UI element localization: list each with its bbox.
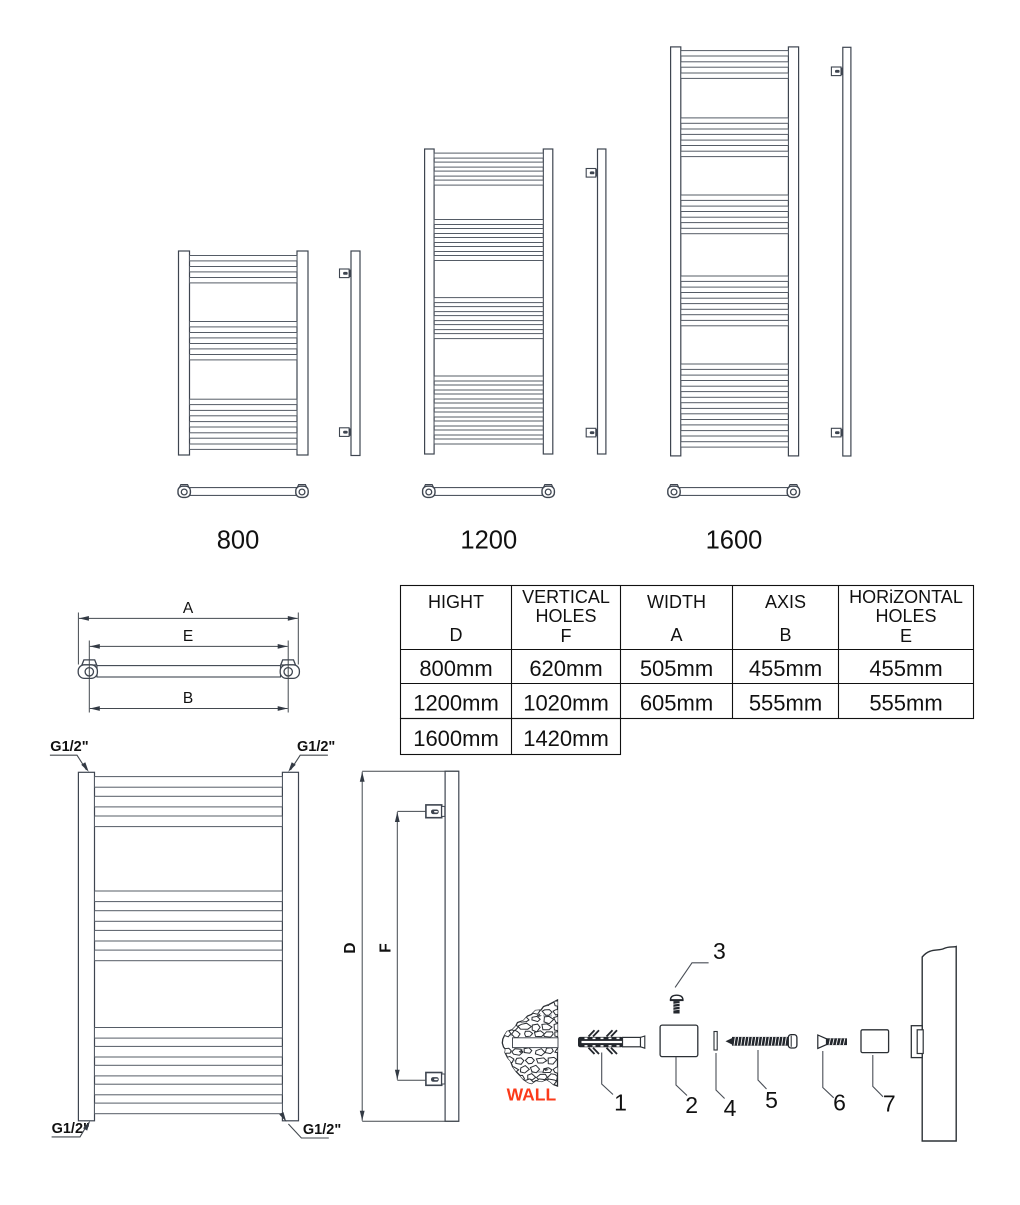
svg-text:605mm: 605mm	[640, 691, 713, 716]
svg-text:A: A	[183, 600, 194, 617]
svg-text:5: 5	[765, 1087, 778, 1113]
svg-text:505mm: 505mm	[640, 656, 713, 681]
svg-text:G1/2": G1/2"	[50, 739, 88, 755]
svg-text:E: E	[183, 628, 193, 645]
svg-text:555mm: 555mm	[869, 691, 942, 716]
svg-text:HIGHT: HIGHT	[428, 592, 484, 612]
svg-text:620mm: 620mm	[529, 656, 602, 681]
svg-text:455mm: 455mm	[869, 656, 942, 681]
svg-text:F: F	[561, 626, 572, 646]
svg-text:B: B	[779, 625, 791, 645]
svg-text:B: B	[183, 690, 193, 707]
svg-text:800mm: 800mm	[419, 656, 492, 681]
svg-text:1600mm: 1600mm	[413, 726, 499, 751]
svg-text:A: A	[670, 625, 682, 645]
svg-text:1200mm: 1200mm	[413, 691, 499, 716]
svg-text:D: D	[450, 625, 463, 645]
svg-text:G1/2": G1/2"	[297, 739, 335, 755]
svg-text:HORiZONTAL: HORiZONTAL	[849, 587, 963, 607]
svg-text:HOLES: HOLES	[875, 606, 936, 626]
svg-text:WALL: WALL	[507, 1085, 557, 1105]
svg-text:E: E	[900, 626, 912, 646]
svg-text:WIDTH: WIDTH	[647, 592, 706, 612]
svg-text:1200: 1200	[460, 527, 517, 555]
svg-text:1600: 1600	[706, 527, 763, 555]
svg-text:1020mm: 1020mm	[523, 691, 609, 716]
svg-text:F: F	[378, 943, 395, 952]
svg-text:AXIS: AXIS	[765, 592, 806, 612]
svg-text:1420mm: 1420mm	[523, 726, 609, 751]
svg-text:3: 3	[713, 938, 726, 964]
svg-text:1: 1	[614, 1090, 627, 1116]
svg-text:G1/2": G1/2"	[303, 1122, 341, 1138]
svg-text:4: 4	[724, 1095, 737, 1121]
svg-text:HOLES: HOLES	[535, 606, 596, 626]
svg-text:6: 6	[833, 1090, 846, 1116]
svg-text:D: D	[342, 942, 359, 953]
svg-text:555mm: 555mm	[749, 691, 822, 716]
svg-text:800: 800	[217, 527, 260, 555]
svg-text:VERTICAL: VERTICAL	[522, 587, 610, 607]
svg-text:7: 7	[883, 1091, 896, 1117]
svg-text:2: 2	[685, 1092, 698, 1118]
svg-text:455mm: 455mm	[749, 656, 822, 681]
